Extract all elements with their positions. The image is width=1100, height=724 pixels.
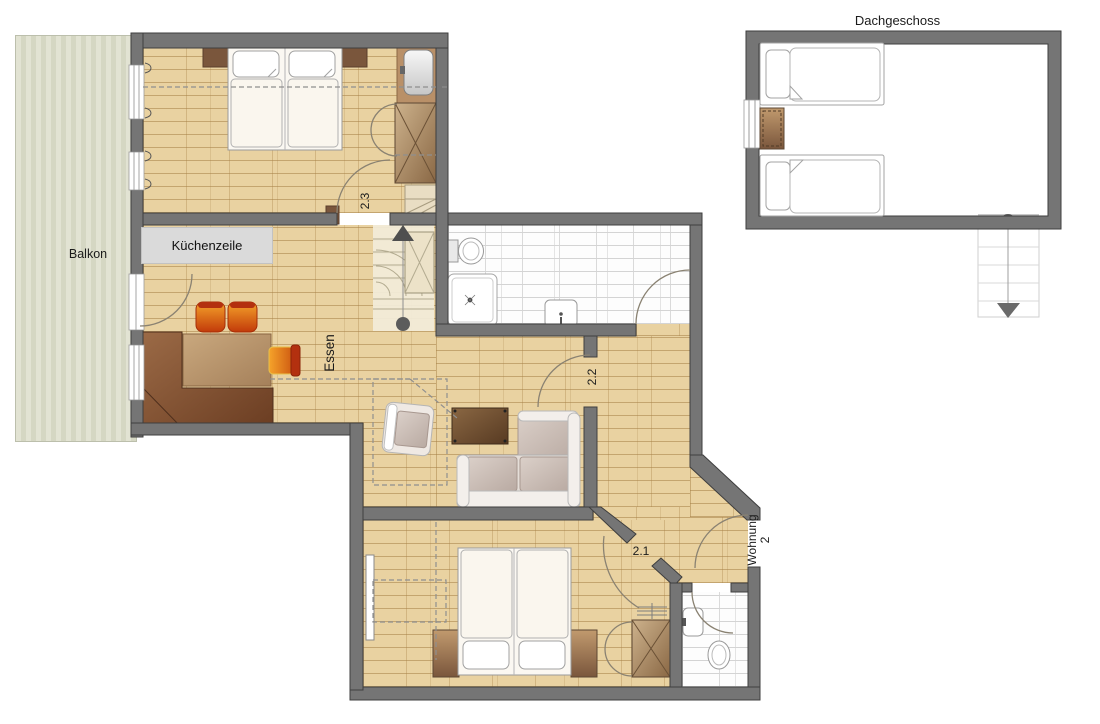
radiator [637,603,667,619]
double-bed [458,548,571,675]
room-22-label: 2.2 [585,362,599,392]
coffee-table [452,408,508,444]
balcony-label: Balkon [50,247,126,261]
living-furniture [382,402,580,507]
wardrobe-door-swing [371,130,397,156]
attic-title: Dachgeschoss [840,14,955,28]
bedroom-21-furniture [366,548,670,677]
nightstand [433,630,459,677]
washbasin-bedroom [397,42,436,103]
wardrobe-21 [632,620,670,677]
sink [681,608,703,636]
nightstand [571,630,597,677]
closet-door-swing [605,622,632,649]
room-23-label: 2.3 [358,186,372,216]
staircase-main [373,225,434,331]
dining-label: Essen [323,318,337,388]
sink [545,300,577,327]
entrance-label: Wohnung 2 [746,513,772,567]
dining-table [183,334,271,386]
wardrobe-door-swing [371,104,397,130]
floor-plan-page: Balkon Küchenzeile Essen 2.3 2.2 2.1 Woh… [0,0,1100,724]
kitchenette-label: Küchenzeile [172,238,243,253]
single-bed [760,155,884,216]
kitchenette-unit: Küchenzeile [141,227,273,264]
chair [269,345,300,376]
attic-furniture [760,43,884,216]
shower [448,274,497,326]
stair-start-dot [396,317,410,331]
bathroom-top-fixtures [448,238,577,327]
staircase-attic [978,214,1039,318]
bathroom-top-door-swing [636,270,690,324]
bedroom-23-furniture [203,42,436,224]
dining-furniture [143,302,300,428]
bathroom-bottom-fixtures [681,608,730,669]
armchair [382,402,435,457]
toilet [448,238,484,264]
closet-door-swing [605,649,632,676]
balcony-door-swing [140,274,192,326]
stool [228,302,257,332]
toilet [708,641,730,669]
stool [196,302,225,332]
single-bed [760,43,884,105]
entrance-door-swing [695,515,748,568]
room-21-label: 2.1 [626,544,656,558]
room-22-door-swing [538,355,590,407]
plan-overlay [0,0,1100,724]
window-casement-marks [145,63,151,189]
wardrobe-23 [395,103,436,183]
dresser [760,108,784,149]
stair-upper-flight [405,185,436,217]
double-bed [228,47,342,150]
